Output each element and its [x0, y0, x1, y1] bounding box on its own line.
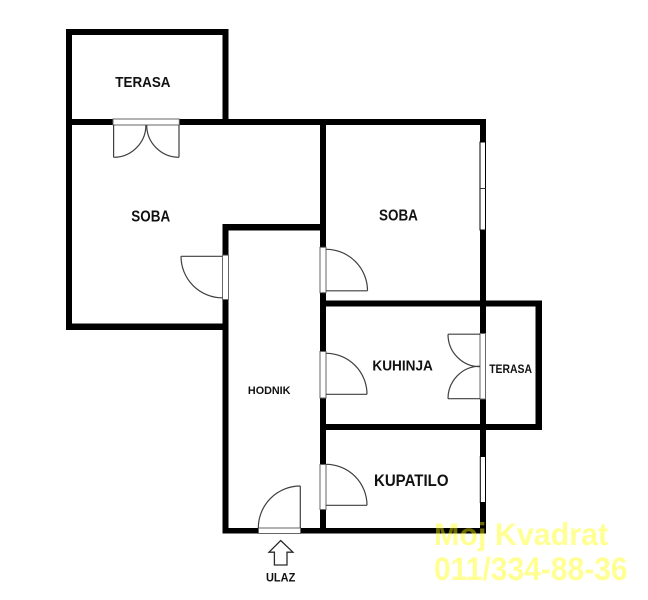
svg-text:HODNIK: HODNIK: [248, 385, 291, 397]
svg-text:KUHINJA: KUHINJA: [372, 357, 433, 374]
svg-text:Moj Kvadrat: Moj Kvadrat: [434, 516, 609, 552]
svg-text:SOBA: SOBA: [379, 208, 418, 225]
svg-text:KUPATILO: KUPATILO: [374, 472, 449, 490]
svg-text:TERASA: TERASA: [489, 362, 532, 376]
svg-text:TERASA: TERASA: [115, 74, 170, 91]
svg-text:011/334-88-36: 011/334-88-36: [434, 551, 628, 587]
svg-text:ULAZ: ULAZ: [266, 570, 295, 584]
svg-text:SOBA: SOBA: [131, 209, 170, 226]
